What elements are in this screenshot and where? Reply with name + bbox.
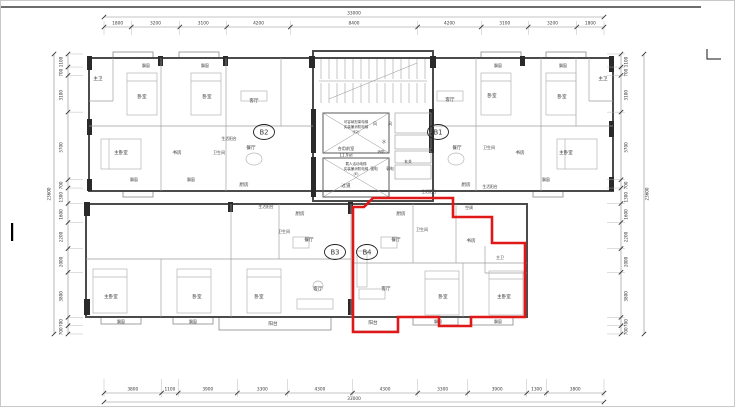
dim-label-left: 1600 xyxy=(59,209,64,220)
room-label: 飘窗 xyxy=(494,63,502,68)
dim-label-bottom: 1300 xyxy=(531,387,542,393)
room-label: 主卧室 xyxy=(114,149,128,156)
dim-label-bottom: 3300 xyxy=(257,387,268,393)
dim-label-bottom: 3800 xyxy=(570,387,581,393)
room-label: 水 xyxy=(382,138,386,144)
room-label: 厨房 xyxy=(239,181,249,188)
elevator-note-1: 可容纳担架电梯 xyxy=(344,119,369,124)
elevator-note-1: 实装兼消防电梯 xyxy=(344,124,369,129)
dim-label-right: 3100 xyxy=(624,90,629,101)
dim-label-right: 700 xyxy=(624,319,629,327)
room-label: 餐厅 xyxy=(304,236,314,243)
room-label: 餐厅 xyxy=(391,236,401,243)
dim-label-bottom: 3300 xyxy=(437,387,448,393)
dim-overall-left: 23600 xyxy=(47,187,52,200)
dim-label-bottom: 3900 xyxy=(202,387,213,393)
room-label: 厨房 xyxy=(295,210,305,217)
room-label: 飘窗 xyxy=(142,63,150,68)
room-label: 卧室 xyxy=(254,293,264,300)
dim-label-left: 2200 xyxy=(59,231,64,242)
highlight-layer xyxy=(353,198,525,332)
dim-label-top: 4200 xyxy=(444,21,455,27)
room-label: 生活阳台 xyxy=(221,136,236,141)
room-label: 飘窗 xyxy=(542,177,550,182)
dim-label-left: 2000 xyxy=(59,256,64,267)
dim-label-bottom: 4300 xyxy=(380,387,391,393)
room-label: 阳台 xyxy=(268,320,278,327)
dim-label-top: 4200 xyxy=(253,21,264,27)
room-label: 飘窗 xyxy=(494,319,502,324)
elevator-note-2: (E) xyxy=(354,172,360,176)
room-label: 卫生间 xyxy=(278,228,290,234)
room-label: 飘窗 xyxy=(189,319,197,324)
dim-label-right: 1300 xyxy=(624,192,629,203)
elevator-note-2: 实装兼消防电梯 xyxy=(344,166,369,171)
dim-label-top: 1800 xyxy=(112,21,123,27)
dim-label-right: 2200 xyxy=(624,231,629,242)
dim-label-bottom: 3800 xyxy=(127,387,138,393)
room-label: 消防 xyxy=(377,149,385,154)
dim-label-top: 8400 xyxy=(349,21,360,27)
unit-label-b3[interactable]: B3 xyxy=(325,245,346,260)
room-label: 卫生间 xyxy=(483,144,495,150)
dim-label-bottom: 3900 xyxy=(492,387,503,393)
room-label: 客厅 xyxy=(313,285,323,292)
room-label: 飘窗 xyxy=(559,63,567,68)
room-label: 玄关 xyxy=(404,159,412,164)
dim-label-right: 700 xyxy=(624,327,629,335)
room-label: 客厅 xyxy=(381,285,391,292)
dim-overall-right: 23600 xyxy=(645,187,650,200)
selected-unit-outline-b4[interactable] xyxy=(353,198,525,332)
room-label: 卧室 xyxy=(192,293,202,300)
room-label: 飘窗 xyxy=(117,319,125,324)
floor-plan: 1800320031004200840042003100320018003300… xyxy=(1,1,735,407)
dim-label-left: 700 xyxy=(59,181,64,189)
room-label: 主卫 xyxy=(496,254,504,260)
room-label: 弱电 xyxy=(386,166,394,171)
room-label: 飘窗 xyxy=(187,177,195,182)
dim-label-top: 3100 xyxy=(198,21,209,27)
dim-label-left: 5700 xyxy=(59,142,64,153)
dim-label-left: 700 xyxy=(59,68,64,76)
room-label: 强电 xyxy=(370,166,378,171)
dim-label-top: 3200 xyxy=(150,21,161,27)
dim-label-left: 1100 xyxy=(59,56,64,67)
dim-label-left: 1300 xyxy=(59,192,64,203)
dim-label-top: 1800 xyxy=(585,21,596,27)
dim-label-left: 700 xyxy=(59,327,64,335)
room-label: 餐厅 xyxy=(246,144,256,151)
dim-label-left: 3800 xyxy=(59,291,64,302)
dim-label-right: 2000 xyxy=(624,256,629,267)
room-label: 主卫 xyxy=(93,75,103,82)
dim-label-right: 1600 xyxy=(624,209,629,220)
room-label: 卧室 xyxy=(202,93,212,100)
floor-plan-canvas: 1800320031004200840042003100320018003300… xyxy=(0,0,735,407)
dim-overall-top: 33000 xyxy=(347,11,361,17)
room-label: 生活阳台 xyxy=(258,204,273,209)
furniture-layer xyxy=(93,73,597,315)
room-label: 书房 xyxy=(515,149,525,156)
dim-label-top: 3100 xyxy=(499,21,510,27)
svg-text:B3: B3 xyxy=(331,248,340,256)
dim-label-bottom: 4300 xyxy=(314,387,325,393)
dim-overall-bottom: 33000 xyxy=(347,396,361,402)
dim-label-right: 1100 xyxy=(624,56,629,67)
room-label: 生活阳台 xyxy=(482,184,497,189)
room-label: 餐厅 xyxy=(452,144,462,151)
room-label: 过道 xyxy=(341,182,351,189)
dim-label-right: 3800 xyxy=(624,291,629,302)
dim-label-left: 700 xyxy=(59,319,64,327)
lobby-label: 合用前室 xyxy=(338,145,355,152)
dim-label-right: 700 xyxy=(624,68,629,76)
room-label: 主卧室 xyxy=(497,293,511,300)
room-label: 卧室 xyxy=(137,93,147,100)
dim-label-bottom: 1100 xyxy=(164,387,175,393)
room-label: 厨房 xyxy=(461,181,471,188)
room-label: 生活阳台 xyxy=(421,189,436,194)
unit-label-b2[interactable]: B2 xyxy=(254,125,275,140)
room-label: 卫生间 xyxy=(213,149,225,155)
room-label: 卧室 xyxy=(438,293,448,300)
room-label: 飘窗 xyxy=(130,177,138,182)
room-label: 书房 xyxy=(172,149,182,156)
dim-label-right: 5700 xyxy=(624,142,629,153)
room-label: 书房 xyxy=(466,237,476,244)
room-label: 卧室 xyxy=(557,93,567,100)
room-label: 风 xyxy=(388,121,392,126)
room-label: 主卧室 xyxy=(104,293,118,300)
elevator-note-1: (F2) xyxy=(353,130,361,134)
stray-cursor-mark xyxy=(11,223,13,241)
room-label: 主卧室 xyxy=(559,149,573,156)
elevator-note-2: 载人活动电梯 xyxy=(346,161,367,166)
viewport-corner-mark xyxy=(707,49,721,59)
room-label: 阳台 xyxy=(368,319,378,326)
room-label: 空调 xyxy=(465,205,473,210)
room-label: 卧室 xyxy=(487,92,497,99)
staircase xyxy=(319,59,427,103)
room-label: 飘窗 xyxy=(201,63,209,68)
svg-text:B2: B2 xyxy=(260,128,269,136)
svg-text:B1: B1 xyxy=(434,128,443,136)
dim-label-top: 3200 xyxy=(547,21,558,27)
room-label: 客厅 xyxy=(249,97,259,104)
lobby-label: 11.9㎡ xyxy=(339,152,353,158)
room-label: 主卫 xyxy=(598,75,608,82)
dim-label-left: 3100 xyxy=(59,90,64,101)
room-label: 厨房 xyxy=(396,210,406,217)
room-label: 风 xyxy=(373,121,377,126)
dim-label-right: 700 xyxy=(624,181,629,189)
svg-text:B4: B4 xyxy=(363,248,372,256)
room-label: 客厅 xyxy=(445,96,455,103)
room-label: 卫生间 xyxy=(416,226,428,232)
